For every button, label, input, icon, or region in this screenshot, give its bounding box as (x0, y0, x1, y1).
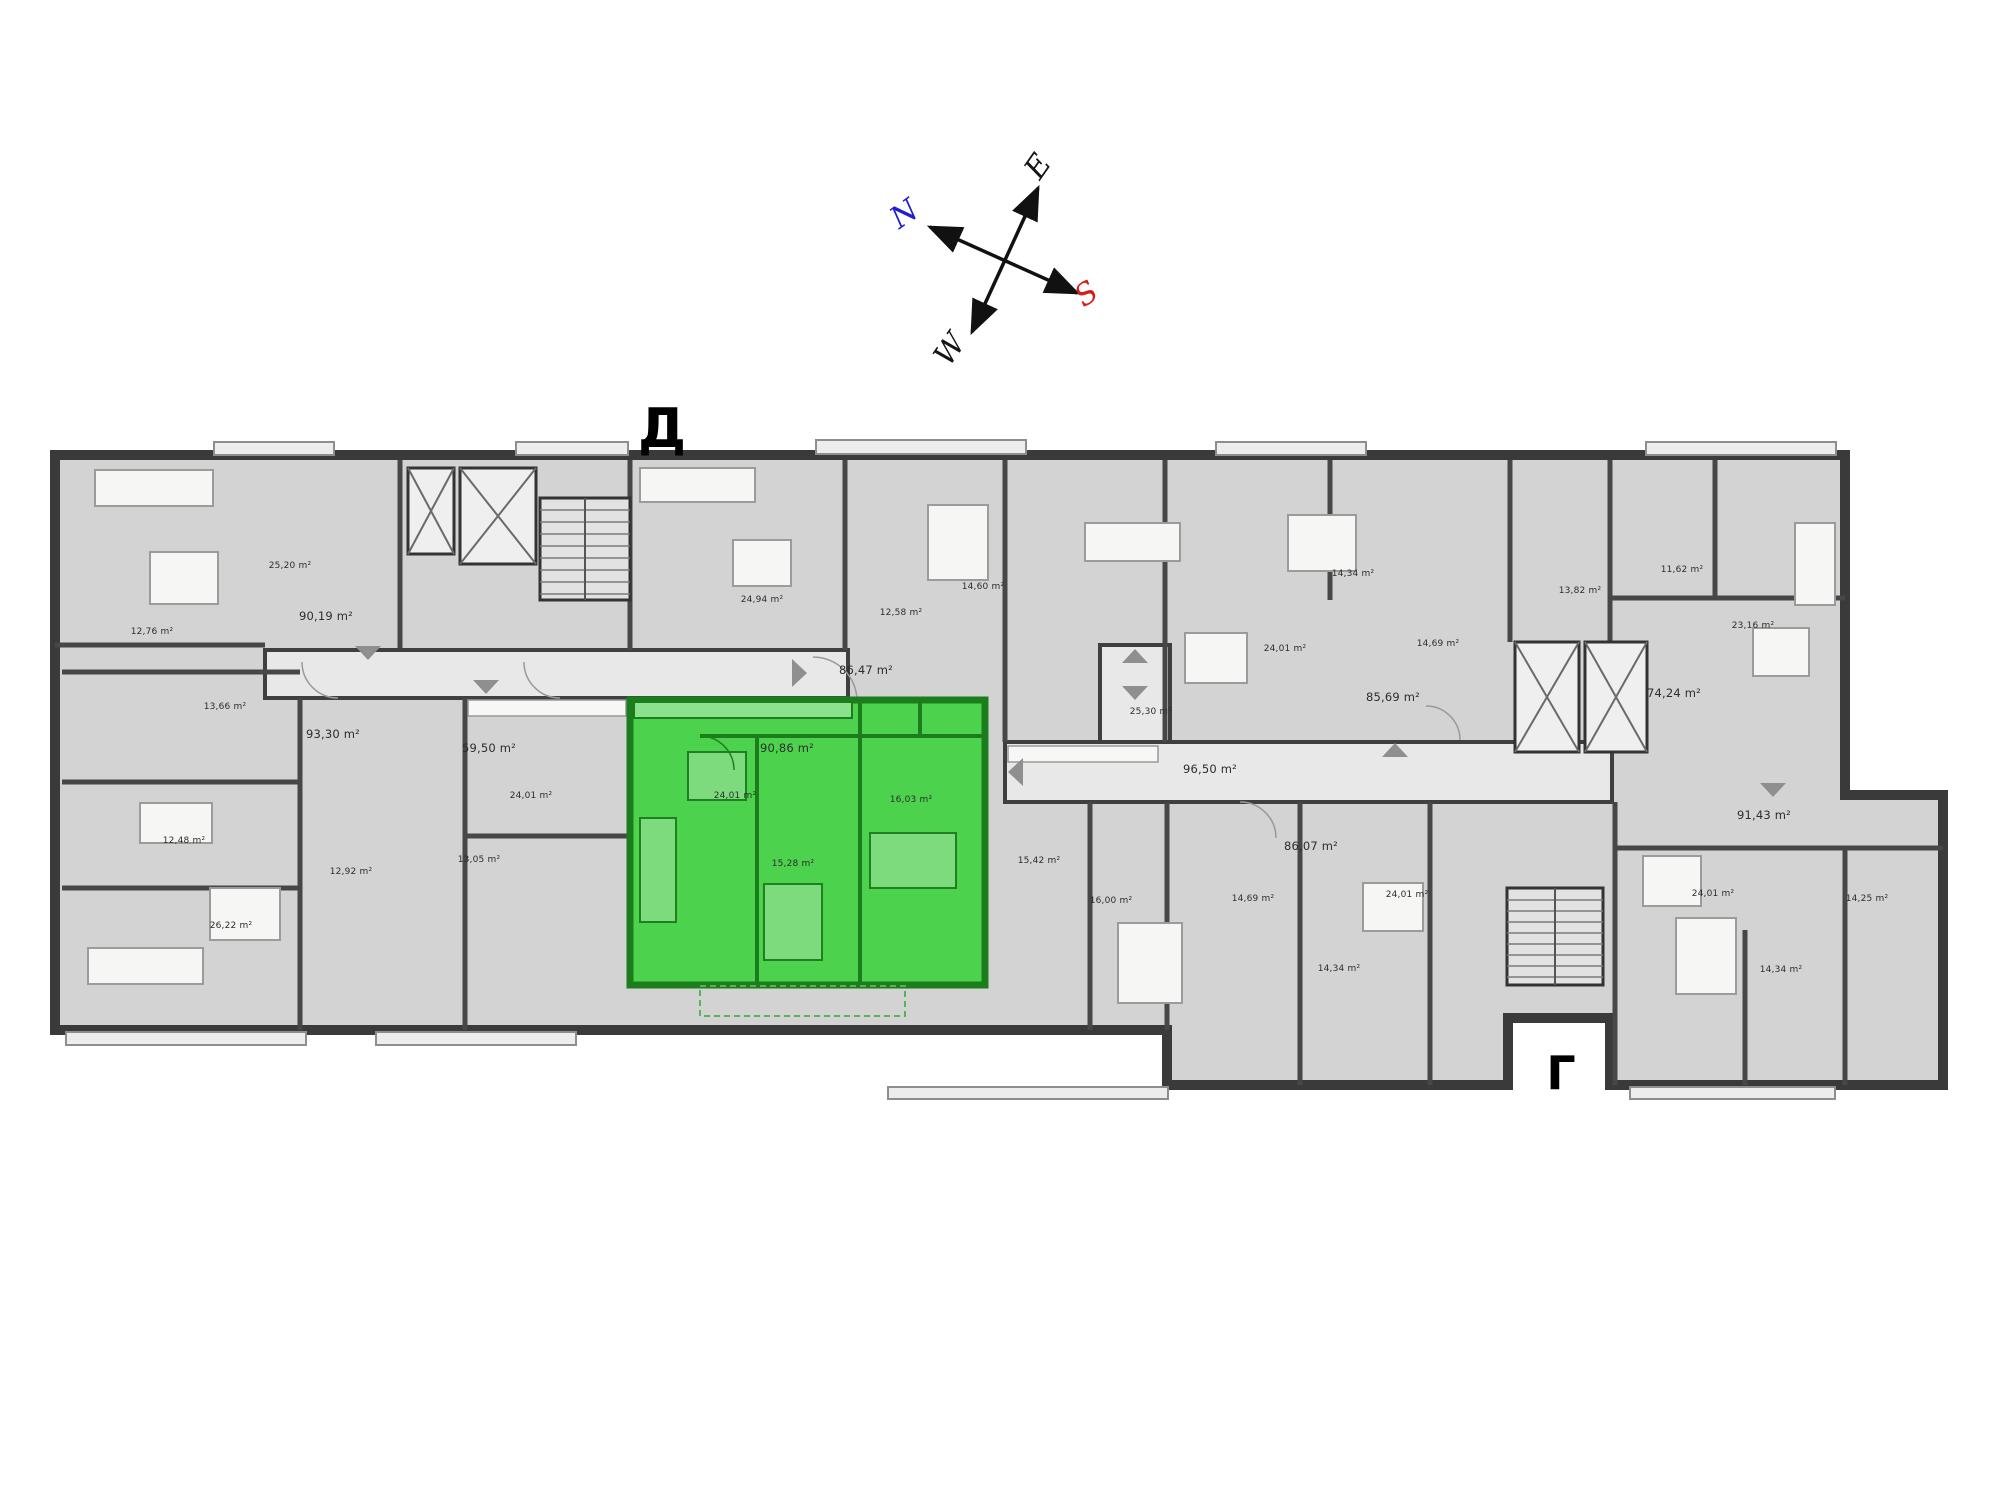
area-label: 15,42 m² (1018, 856, 1061, 866)
area-label: 24,01 m² (1692, 889, 1735, 899)
area-label: 14,34 m² (1332, 569, 1375, 579)
area-label: 24,01 m² (1386, 890, 1429, 900)
entrance-label-g: Г (1546, 1050, 1575, 1096)
area-label: 96,50 m² (1183, 762, 1237, 776)
area-label-highlighted: 24,01 m² (714, 791, 757, 801)
area-label: 11,62 m² (1661, 565, 1704, 575)
floor-plan-drawing: N E S W (0, 0, 2000, 1500)
area-label: 90,19 m² (299, 609, 353, 623)
area-label: 26,22 m² (210, 921, 253, 931)
area-label: 14,60 m² (962, 582, 1005, 592)
area-label: 86,07 m² (1284, 839, 1338, 853)
compass-east-label: E (1017, 147, 1059, 186)
area-label-highlighted: 16,03 m² (890, 795, 933, 805)
compass-south-label: S (1068, 274, 1105, 314)
area-label: 24,01 m² (510, 791, 553, 801)
area-label: 14,34 m² (1318, 964, 1361, 974)
area-label: 59,50 m² (462, 741, 516, 755)
corridor-left (265, 650, 848, 698)
area-label: 25,20 m² (269, 561, 312, 571)
floorplan-page: N E S W Д Г 25,20 m² 90,19 m² 12,76 m² 1… (0, 0, 2000, 1500)
area-label: 24,94 m² (741, 595, 784, 605)
area-label: 74,24 m² (1647, 686, 1701, 700)
entrance-label-d: Д (638, 402, 686, 456)
area-label: 13,66 m² (204, 702, 247, 712)
building-footprint (55, 455, 1943, 1085)
area-label: 93,30 m² (306, 727, 360, 741)
elevator-core-left (408, 468, 536, 564)
area-label: 13,82 m² (1559, 586, 1602, 596)
area-label: 14,34 m² (1760, 965, 1803, 975)
area-label: 25,30 m² (1130, 707, 1173, 717)
compass-north-label: N (883, 191, 927, 236)
area-label: 12,48 m² (163, 836, 206, 846)
area-label: 85,69 m² (1366, 690, 1420, 704)
compass: N E S W (883, 147, 1105, 372)
compass-west-label: W (927, 325, 975, 372)
area-label-highlighted: 15,28 m² (772, 859, 815, 869)
area-label: 12,58 m² (880, 608, 923, 618)
area-label: 14,69 m² (1417, 639, 1460, 649)
area-label: 12,76 m² (131, 627, 174, 637)
area-label: 23,16 m² (1732, 621, 1775, 631)
area-label: 86,47 m² (839, 663, 893, 677)
area-label: 24,01 m² (1264, 644, 1307, 654)
area-label: 14,25 m² (1846, 894, 1889, 904)
area-label: 12,92 m² (330, 867, 373, 877)
area-label-highlighted: 90,86 m² (760, 741, 814, 755)
area-label: 16,00 m² (1090, 896, 1133, 906)
building-outline (55, 455, 1943, 1085)
area-label: 13,05 m² (458, 855, 501, 865)
stairs-right (1507, 888, 1603, 985)
area-label: 14,69 m² (1232, 894, 1275, 904)
area-label: 91,43 m² (1737, 808, 1791, 822)
stairs-left (540, 498, 630, 600)
